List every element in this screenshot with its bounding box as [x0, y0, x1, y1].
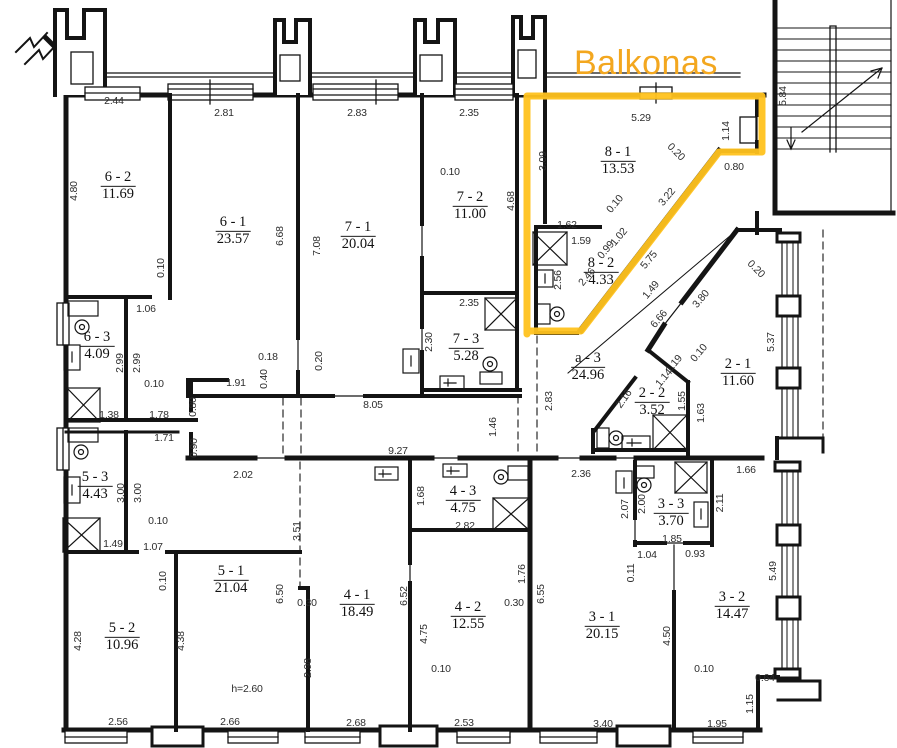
window [777, 233, 800, 438]
ledge [778, 681, 820, 700]
stair-direction-arrow [787, 68, 882, 149]
window [85, 80, 672, 104]
sink [64, 270, 708, 527]
balcony-title: Balkonas [574, 44, 718, 83]
wall-break-icon [16, 33, 56, 64]
floor-plan-drawing [0, 0, 897, 748]
floor-plan: 6 - 211.696 - 123.577 - 120.047 - 211.00… [0, 0, 897, 748]
door-leaf [740, 117, 756, 143]
window [775, 462, 800, 678]
shower-box [63, 232, 707, 552]
balcony-outline [527, 96, 762, 334]
stairs [775, 0, 893, 213]
